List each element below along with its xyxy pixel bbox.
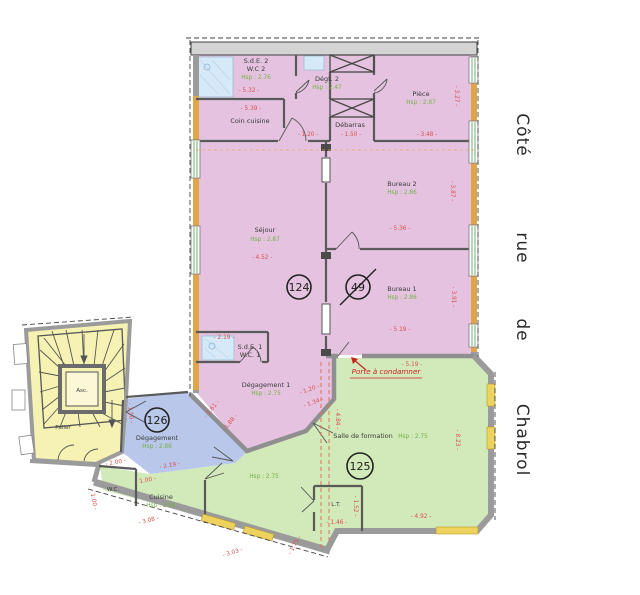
dimension-label: - 3.87 - — [449, 181, 455, 202]
room-label: Séjour — [255, 226, 276, 234]
window-left-2 — [191, 226, 200, 274]
ceiling-height-label: Hsp : 2.86 — [142, 444, 172, 450]
dimension-label: - 3.03 - — [222, 547, 244, 559]
room-label: Coin cuisine — [230, 117, 269, 125]
ceiling-height-label: Hsp : 2.75 — [249, 474, 279, 480]
dimension-label: - 4.92 - — [411, 514, 432, 520]
lot-number-text: 126 — [147, 414, 168, 427]
room-label: Salle de formation — [333, 432, 393, 440]
room-label: S.d.E. 2 — [244, 57, 269, 65]
ceiling-height-label: Hsp : 2.87 — [250, 237, 280, 243]
room-label: Dégagement — [136, 434, 179, 442]
dimension-label: - 4.52 - — [252, 255, 273, 261]
window-green-right-2 — [487, 427, 495, 449]
room-label: Cuisine — [149, 493, 173, 501]
room-label: Pièce — [412, 90, 429, 98]
window-left-1 — [191, 140, 200, 178]
floor-plan-svg: Porte à condamner S.d.E. 2W.C 2Hsp : 2.7… — [0, 0, 640, 595]
shower-degt2 — [304, 56, 324, 70]
top-wall — [191, 42, 477, 55]
dimension-label: - 1.20 - — [298, 132, 319, 138]
ceiling-height-label: Hsp : 2.76 — [241, 75, 271, 81]
dimension-label: - 5.39 - — [241, 106, 262, 112]
street-word: Côté — [512, 113, 532, 156]
dimension-label: - 4.84 - — [334, 409, 340, 430]
ceiling-height-label: Hsp : 2.86 — [387, 295, 417, 301]
room-label: Asc. — [76, 388, 88, 394]
window-right-3 — [469, 225, 478, 276]
room-label: W.C. — [107, 487, 120, 493]
dimension-label: - 1.50 - — [341, 132, 362, 138]
dimension-label: - 8.23 - — [454, 430, 460, 451]
dimension-label: - 1.46 - — [327, 520, 348, 526]
street-word: rue — [512, 232, 532, 263]
ceiling-height-label: Hsp : 2.86 — [146, 503, 176, 509]
room-label: Bureau 1 — [387, 285, 416, 293]
window-right-2 — [469, 121, 478, 163]
door-warning-label: Porte à condamner — [352, 367, 422, 376]
street-word: Chabrol — [512, 404, 532, 477]
room-label: W.C. 1 — [240, 351, 261, 359]
room-label: Dégagement 1 — [242, 381, 290, 389]
dimension-label: - 5.36 - — [390, 226, 411, 232]
ceiling-height-label: Hsp : 2.47 — [312, 85, 342, 91]
dimension-label: - 5.32 - — [239, 88, 260, 94]
window-right-4 — [469, 324, 478, 347]
dimension-label: - 1.52 - — [352, 496, 358, 517]
window-bottom-3 — [436, 527, 478, 534]
room-label: W.C 2 — [247, 65, 266, 73]
room-label: Dégt. 2 — [315, 75, 339, 83]
window-right-1 — [469, 57, 478, 83]
dimension-label: - 5.19 - — [402, 362, 423, 368]
room-label: S.d.E. 1 — [238, 343, 263, 351]
ceiling-height-label: Hsp : 2.87 — [406, 100, 436, 106]
dimension-label: - 3.27 - — [453, 86, 459, 107]
floor-plan-page: Porte à condamner S.d.E. 2W.C 2Hsp : 2.7… — [0, 0, 640, 595]
dimension-label: - 1.00 - — [88, 489, 98, 511]
dimension-label: - 5.19 - — [390, 327, 411, 333]
dimension-label: - 3.91 - — [450, 287, 456, 308]
lot-number-text: 125 — [350, 460, 371, 473]
dimension-label: - 3.48 - — [417, 132, 438, 138]
ceiling-height-label: Hsp : 2.75 — [398, 434, 428, 440]
ceiling-height-label: Hsp : 2.86 — [387, 190, 417, 196]
room-label: Bureau 2 — [387, 180, 416, 188]
room-label: Palier — [55, 425, 71, 431]
street-name: Côté rue de Chabrol — [512, 113, 532, 476]
room-label: Débarras — [335, 121, 365, 129]
window-green-right-1 — [487, 384, 495, 406]
dimension-label: - 2.19 - — [214, 335, 235, 341]
room-label: L.T. — [331, 502, 341, 508]
lot-number-text: 124 — [289, 281, 310, 294]
ceiling-height-label: Hsp : 2.75 — [251, 391, 281, 397]
dimension-label: - 3.08 - — [138, 516, 160, 527]
street-word: de — [512, 318, 532, 341]
